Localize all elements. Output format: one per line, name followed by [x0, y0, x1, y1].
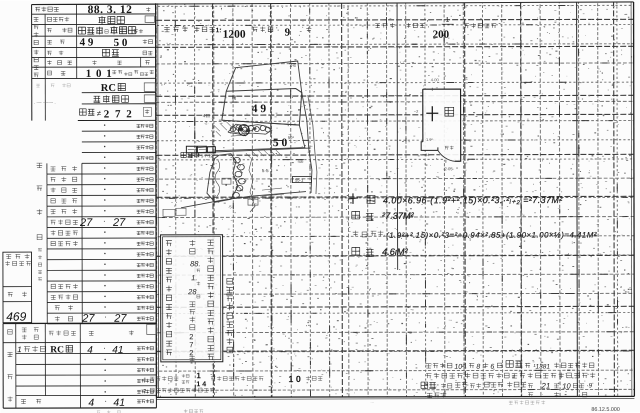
svg-text:55·1: 55·1 [295, 178, 304, 183]
svg-text:·2·: ·2· [204, 120, 209, 125]
svg-text:5·5: 5·5 [262, 168, 269, 173]
svg-text:9: 9 [285, 27, 291, 39]
svg-text:(1.9²+².15)×0.²3=²+0.94×².85+(: (1.9²+².15)×0.²3=²+0.94×².85+(1.90×1.00×… [386, 230, 597, 239]
svg-text:8: 8 [476, 364, 480, 371]
svg-text:·94: ·94 [424, 153, 430, 157]
svg-text:4: 4 [88, 397, 94, 409]
svg-text:27: 27 [79, 217, 93, 229]
svg-text:88.: 88. [190, 259, 200, 268]
svg-text:469: 469 [6, 310, 26, 324]
svg-text:1:: 1: [216, 27, 222, 34]
svg-text:6: 6 [490, 364, 494, 371]
svg-text:4.6ιМ²: 4.6ιМ² [382, 247, 408, 257]
svg-text:2: 2 [189, 348, 193, 357]
svg-text:10²: 10² [454, 364, 465, 371]
svg-text:1: 1 [17, 345, 21, 354]
svg-text:21: 21 [540, 382, 550, 391]
svg-text:10: 10 [562, 381, 571, 390]
svg-text:1 0 1: 1 0 1 [86, 68, 113, 80]
svg-text:·1.9²·: ·1.9²· [425, 138, 434, 142]
svg-text:~2: ~2 [414, 109, 419, 114]
svg-text:2.: 2. [143, 389, 148, 395]
svg-text:1: 1 [446, 17, 450, 24]
svg-text:86.12.5.000: 86.12.5.000 [591, 407, 619, 413]
svg-text:¹1381: ¹1381 [533, 364, 550, 371]
svg-text:RC: RC [50, 345, 64, 355]
svg-text:·2·05·: ·2·05· [443, 166, 454, 171]
svg-text:4口: 4口 [203, 113, 210, 118]
svg-text:1 4: 1 4 [196, 381, 206, 388]
svg-text:▴: ▴ [266, 137, 268, 142]
svg-text:···: ··· [370, 400, 374, 405]
svg-text:4-6: 4-6 [290, 63, 297, 68]
svg-text:。: 。 [215, 389, 219, 394]
svg-text:·: · [104, 396, 107, 405]
svg-text:4 9: 4 9 [252, 103, 267, 115]
svg-text:2 7 2: 2 7 2 [104, 108, 134, 120]
svg-text:28: 28 [187, 287, 197, 296]
svg-text:·: · [103, 216, 106, 225]
svg-text:41: 41 [112, 345, 123, 356]
svg-text:建: 建 [232, 95, 237, 100]
svg-text:·5·: ·5· [228, 204, 233, 209]
svg-text:4 9: 4 9 [80, 36, 94, 48]
svg-text:1.: 1. [191, 273, 197, 282]
svg-text:1.: 1. [143, 377, 148, 383]
svg-text:1200: 1200 [223, 29, 246, 41]
svg-text:·: · [104, 312, 107, 321]
svg-text:·58·: ·58· [297, 159, 304, 164]
svg-text:1: 1 [196, 371, 201, 380]
svg-text:50¹: 50¹ [288, 135, 295, 140]
svg-text:4·00: 4·00 [431, 77, 440, 82]
svg-text:²7.37М²: ²7.37М² [382, 211, 415, 221]
svg-text:4.00×6.96-(1.9²+².15)×0.²3.·²ᵢ: 4.00×6.96-(1.9²+².15)×0.²3.·²ᵢ₊₂ =²7.37М… [383, 195, 563, 205]
svg-text:1 0: 1 0 [288, 374, 301, 384]
svg-text:1·7·12: 1·7·12 [201, 153, 214, 158]
svg-text:≠: ≠ [97, 109, 102, 118]
svg-text:4: 4 [87, 345, 93, 356]
svg-text:5 0: 5 0 [114, 37, 128, 49]
svg-text:·9: ·9 [586, 382, 592, 389]
svg-text:. — —— .: . — —— . [34, 100, 56, 106]
svg-text:88. 3. 12: 88. 3. 12 [88, 4, 133, 16]
svg-text:41: 41 [113, 397, 125, 409]
svg-text:RC: RC [101, 83, 116, 94]
svg-text:27: 27 [112, 217, 126, 229]
svg-text:5 0: 5 0 [273, 137, 288, 149]
svg-text:·: · [103, 343, 106, 352]
svg-text:200: 200 [433, 29, 450, 41]
